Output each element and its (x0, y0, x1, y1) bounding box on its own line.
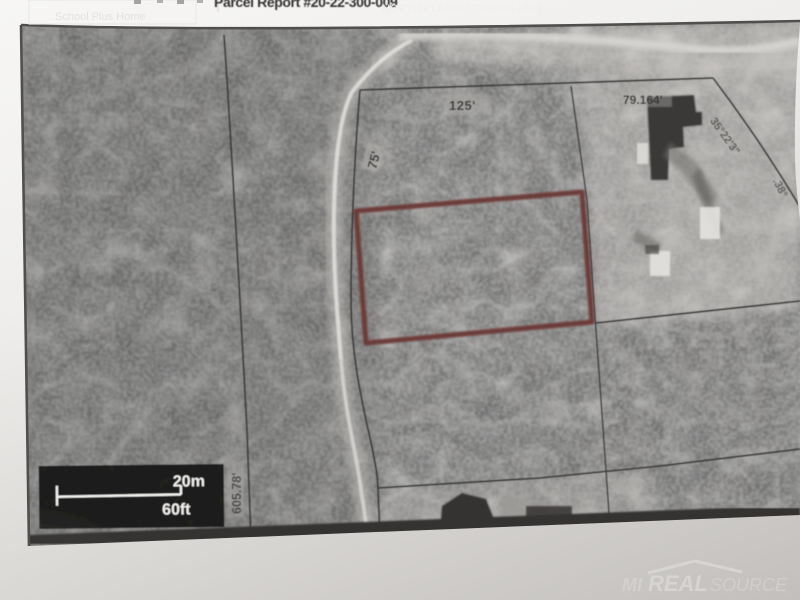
svg-text:NORTH PLAINS CONDOS UNIT: NORTH PLAINS CONDOS UNIT (382, 3, 543, 15)
svg-text:Parcel Report #20-22-300-009: Parcel Report #20-22-300-009 (214, 0, 398, 10)
svg-text:60ft: 60ft (162, 501, 191, 518)
svg-text:MI: MI (622, 575, 643, 595)
svg-text:605.78': 605.78' (230, 473, 244, 514)
svg-text:20m: 20m (173, 473, 205, 490)
svg-text:School Plus Home: School Plus Home (55, 11, 146, 23)
svg-text:REAL: REAL (648, 571, 708, 596)
svg-text:SOURCE: SOURCE (710, 575, 788, 595)
svg-text:79.164': 79.164' (623, 93, 663, 107)
svg-text:125': 125' (449, 98, 476, 113)
